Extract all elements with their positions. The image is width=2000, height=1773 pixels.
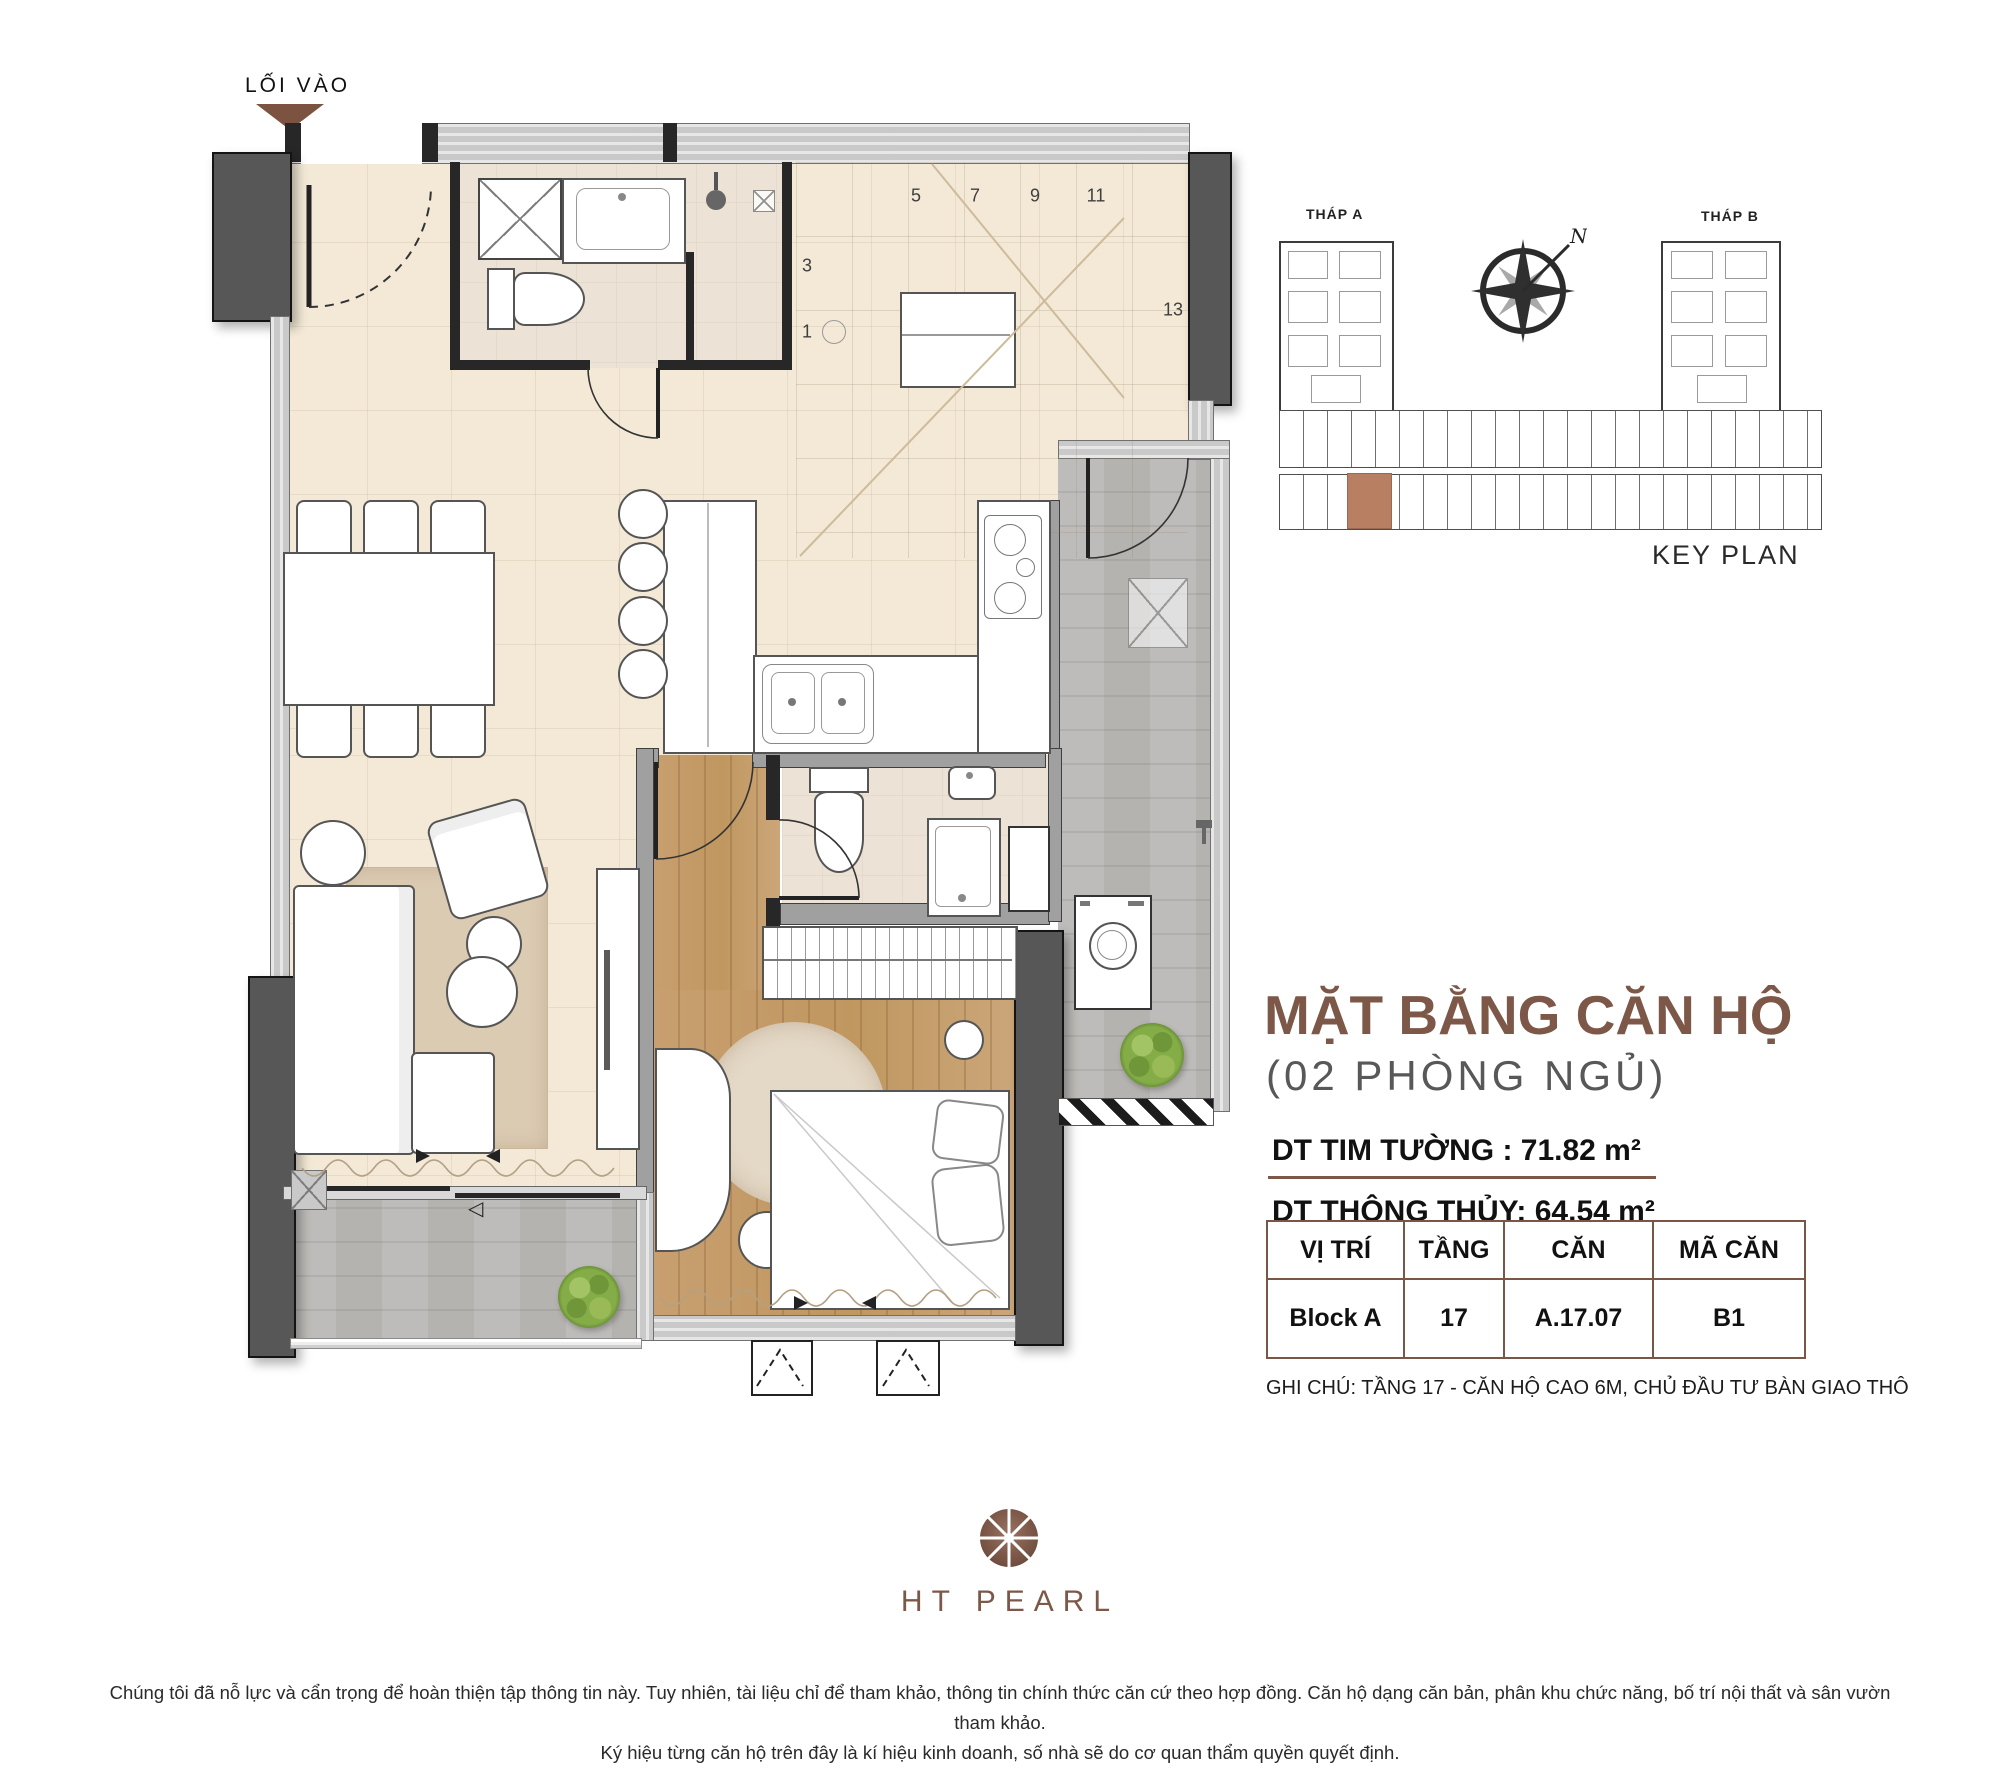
stair-number: 7: [970, 186, 980, 207]
stove-burner: [1016, 558, 1035, 577]
toilet-1-tank: [487, 268, 515, 330]
wall-bedroom-left: [636, 1192, 654, 1341]
highlighted-unit: [1348, 474, 1391, 528]
col-tang: TẦNG: [1404, 1221, 1504, 1279]
pillow: [930, 1163, 1006, 1248]
cell-unit-code: B1: [1653, 1279, 1805, 1358]
dining-chair: [296, 698, 352, 758]
dining-table: [283, 552, 495, 706]
disclaimer-line-1: Chúng tôi đã nỗ lực và cẩn trọng để hoàn…: [100, 1678, 1900, 1738]
shower-2-drain: [958, 894, 966, 902]
vanity-2: [948, 766, 996, 800]
wall-bedroom-right: [1014, 930, 1064, 1346]
brochure-page: LỐI VÀO: [0, 0, 2000, 1773]
washer-knob: [1128, 901, 1144, 906]
chaise-lounge: [655, 1048, 731, 1252]
tv: [604, 950, 610, 1070]
stair-number: 11: [1087, 186, 1106, 207]
fridge: [900, 292, 1016, 388]
ac-unit: [876, 1340, 940, 1396]
stove-burner: [994, 524, 1026, 556]
dining-chair: [296, 500, 352, 560]
stair-number: 13: [1163, 300, 1183, 321]
wall-bath2: [766, 755, 780, 820]
balcony-drain: [1128, 578, 1188, 648]
page-subtitle: (02 PHÒNG NGỦ): [1266, 1052, 1667, 1100]
wall-cap: [422, 123, 438, 162]
floor-drain: [753, 190, 775, 212]
column: [248, 976, 296, 1358]
bar-stool: [618, 542, 668, 592]
wall-bath1: [450, 162, 460, 368]
side-table: [300, 820, 366, 886]
dining-chair: [363, 698, 419, 758]
compass-icon: N: [1467, 225, 1587, 349]
grid-marker: [822, 320, 846, 344]
wall-right: [1210, 455, 1230, 1112]
fridge-handle: [902, 334, 1010, 336]
balcony-railing: [290, 1338, 642, 1349]
ac-unit: [751, 1340, 813, 1396]
tower-b-outline: [1661, 241, 1781, 412]
vanity-2-faucet: [966, 772, 973, 779]
bedside-table: [944, 1020, 984, 1060]
cell-floor: 17: [1404, 1279, 1504, 1358]
col-ma-can: MÃ CĂN: [1653, 1221, 1805, 1279]
balcony-hatch-strip: [1058, 1098, 1214, 1126]
column: [1188, 152, 1232, 406]
tower-a-outline: [1279, 241, 1394, 412]
wardrobe: [762, 926, 1018, 1000]
plan-note: GHI CHÚ: TẦNG 17 - CĂN HỘ CAO 6M, CHỦ ĐẦ…: [1266, 1377, 1909, 1400]
coffee-table: [446, 956, 518, 1028]
key-plan: THÁP A THÁP B: [1240, 150, 1860, 590]
disclaimer: Chúng tôi đã nỗ lực và cẩn trọng để hoàn…: [100, 1678, 1900, 1768]
column: [212, 152, 292, 322]
balcony-faucet-stem: [1202, 828, 1206, 844]
sofa: [293, 885, 415, 1155]
logo-text: HT PEARL: [860, 1585, 1160, 1619]
washer-knob: [1080, 901, 1090, 906]
wall-bath1: [450, 360, 590, 370]
pillow: [931, 1098, 1006, 1166]
unit-info-table: VỊ TRÍ TẦNG CĂN MÃ CĂN Block A 17 A.17.0…: [1266, 1220, 1806, 1359]
plant: [1120, 1023, 1184, 1087]
shaft: [1008, 826, 1050, 912]
col-can: CĂN: [1504, 1221, 1653, 1279]
floor-corridor: [652, 755, 780, 990]
dining-chair: [363, 500, 419, 560]
stove-burner: [994, 582, 1026, 614]
logo-emblem-icon: [977, 1506, 1041, 1570]
shower-1: [478, 178, 562, 260]
table-row: Block A 17 A.17.07 B1: [1267, 1279, 1805, 1358]
bar-stool: [618, 489, 668, 539]
counter-divider: [707, 503, 709, 747]
divider: [1268, 1176, 1656, 1179]
toilet-2-tank: [809, 767, 869, 793]
key-plan-caption: KEY PLAN: [1652, 540, 1800, 571]
col-vi-tri: VỊ TRÍ: [1267, 1221, 1404, 1279]
window-bedroom: [652, 1315, 1016, 1341]
wall-bath1-partition: [686, 252, 694, 360]
sink-faucet: [838, 698, 846, 706]
tower-a-label: THÁP A: [1306, 206, 1363, 222]
plant: [558, 1266, 620, 1328]
stair-number: 3: [802, 256, 812, 277]
wall-bath1: [658, 360, 792, 370]
table-header-row: VỊ TRÍ TẦNG CĂN MÃ CĂN: [1267, 1221, 1805, 1279]
dining-chair: [430, 500, 486, 560]
sink-faucet: [788, 698, 796, 706]
wall-bath2-right: [1048, 748, 1062, 922]
tower-b-label: THÁP B: [1701, 208, 1759, 224]
stair-number: 1: [802, 322, 812, 343]
washer-door-inner: [1097, 930, 1127, 960]
page-title: MẶT BẰNG CĂN HỘ: [1264, 983, 1793, 1047]
disclaimer-line-2: Ký hiệu từng căn hộ trên đây là kí hiệu …: [100, 1738, 1900, 1768]
bar-stool: [618, 649, 668, 699]
stair-number: 5: [911, 186, 921, 207]
vanity-faucet: [618, 193, 626, 201]
cell-block: Block A: [1267, 1279, 1404, 1358]
kitchen-counter-left: [663, 500, 757, 754]
cell-unit: A.17.07: [1504, 1279, 1653, 1358]
wall-cap: [663, 123, 677, 162]
area-tim-tuong: DT TIM TƯỜNG : 71.82 m²: [1272, 1134, 1641, 1168]
sofa-chaise: [411, 1052, 495, 1154]
level-marker: ◁: [468, 1196, 483, 1221]
north-label: N: [1569, 225, 1587, 248]
balcony-faucet: [1196, 820, 1212, 828]
stair-number: 9: [1030, 186, 1040, 207]
wardrobe-rail: [764, 959, 1012, 961]
dining-chair: [430, 698, 486, 758]
wall-pier: [291, 1170, 327, 1210]
wall-bath1: [782, 162, 792, 368]
building-band: [1279, 410, 1822, 468]
tv-console: [596, 868, 640, 1150]
bar-stool: [618, 596, 668, 646]
toilet-2-bowl: [814, 791, 864, 873]
entry-opening: [301, 121, 422, 164]
